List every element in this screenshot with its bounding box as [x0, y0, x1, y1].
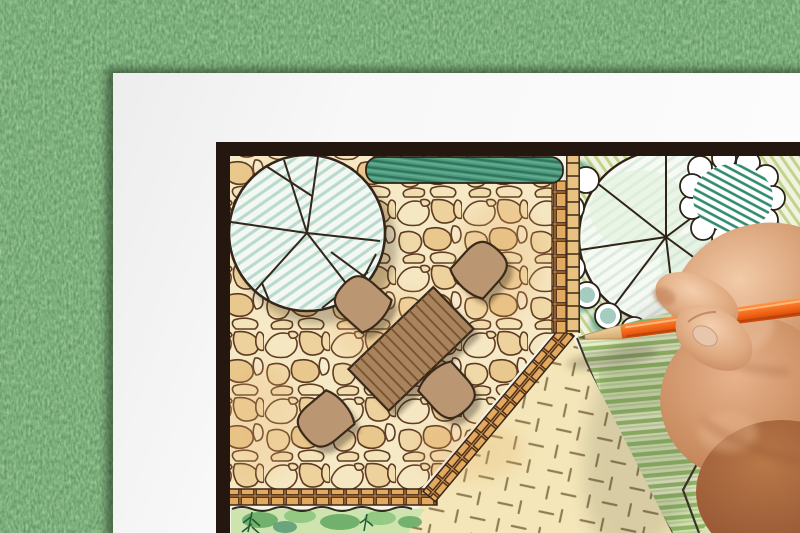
- tile-border-bottom: [228, 489, 437, 505]
- planting-bed-bottom: [231, 507, 425, 533]
- tile-border-right: [552, 181, 566, 333]
- screenshot-root: [0, 0, 800, 533]
- plan-frame-left: [216, 142, 230, 533]
- scene: [0, 0, 800, 533]
- hedge-strip: [366, 157, 563, 183]
- stepping-path: [566, 156, 580, 333]
- plan-frame-top: [216, 142, 800, 156]
